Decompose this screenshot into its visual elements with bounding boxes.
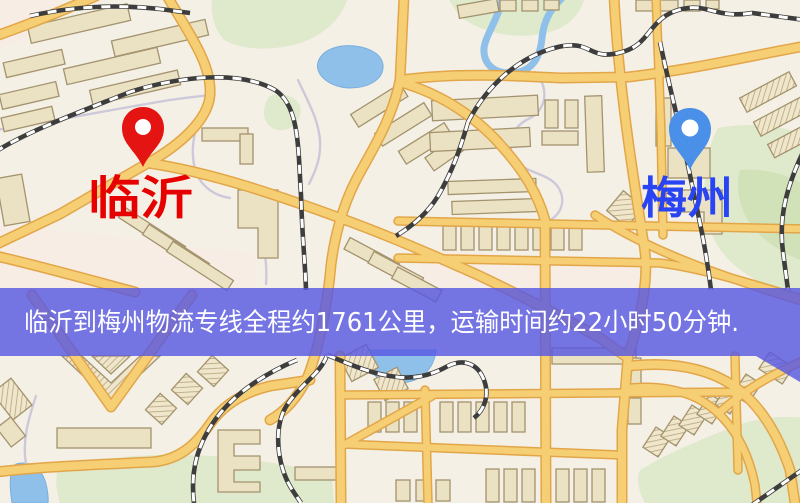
origin-label: 临沂 xyxy=(88,171,193,225)
map-image: 梅州 临沂 临沂到梅州物流专线全程约1761公里，运输时间约22小时50分钟. xyxy=(0,0,800,503)
destination-label: 梅州 xyxy=(641,173,733,224)
pond xyxy=(317,46,383,88)
banner-text: 临沂到梅州物流专线全程约1761公里，运输时间约22小时50分钟. xyxy=(24,308,739,338)
street-map: 梅州 临沂 临沂到梅州物流专线全程约1761公里，运输时间约22小时50分钟. xyxy=(0,0,800,503)
